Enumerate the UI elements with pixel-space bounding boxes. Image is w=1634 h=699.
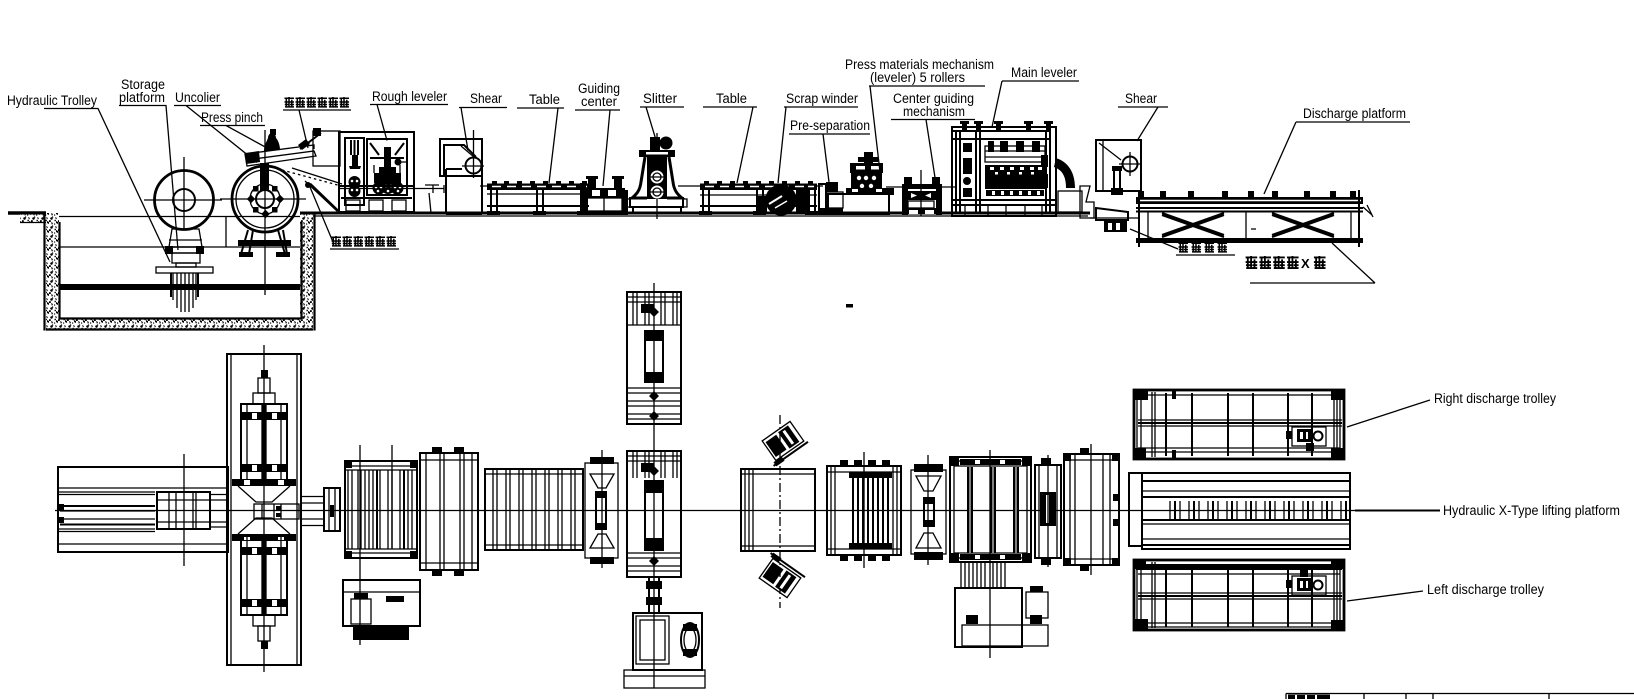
svg-text:Shear: Shear [470,91,502,106]
svg-text:Rough leveler: Rough leveler [372,89,447,104]
svg-text:(leveler) 5 rollers: (leveler) 5 rollers [870,70,965,85]
svg-text:Slitter: Slitter [643,91,677,106]
svg-text:Hydraulic X-Type lifting platf: Hydraulic X-Type lifting platform [1443,503,1620,518]
svg-text:center: center [581,94,617,109]
svg-text:mechanism: mechanism [903,104,965,119]
svg-text:Table: Table [716,91,747,106]
svg-text:Hydraulic Trolley: Hydraulic Trolley [7,93,97,108]
svg-text:Pre-separation: Pre-separation [790,118,870,133]
svg-text:Scrap winder: Scrap winder [786,91,858,106]
svg-text:Uncolier: Uncolier [175,90,220,105]
svg-text:X: X [1301,256,1310,271]
svg-text:Main leveler: Main leveler [1011,65,1077,80]
svg-text:platform: platform [119,90,165,105]
svg-text:Press pinch: Press pinch [201,110,263,125]
svg-text:Discharge platform: Discharge platform [1303,106,1406,121]
svg-text:Left discharge trolley: Left discharge trolley [1427,582,1544,597]
svg-text:Shear: Shear [1125,91,1157,106]
svg-text:Right discharge trolley: Right discharge trolley [1434,391,1556,406]
svg-text:Table: Table [529,92,560,107]
